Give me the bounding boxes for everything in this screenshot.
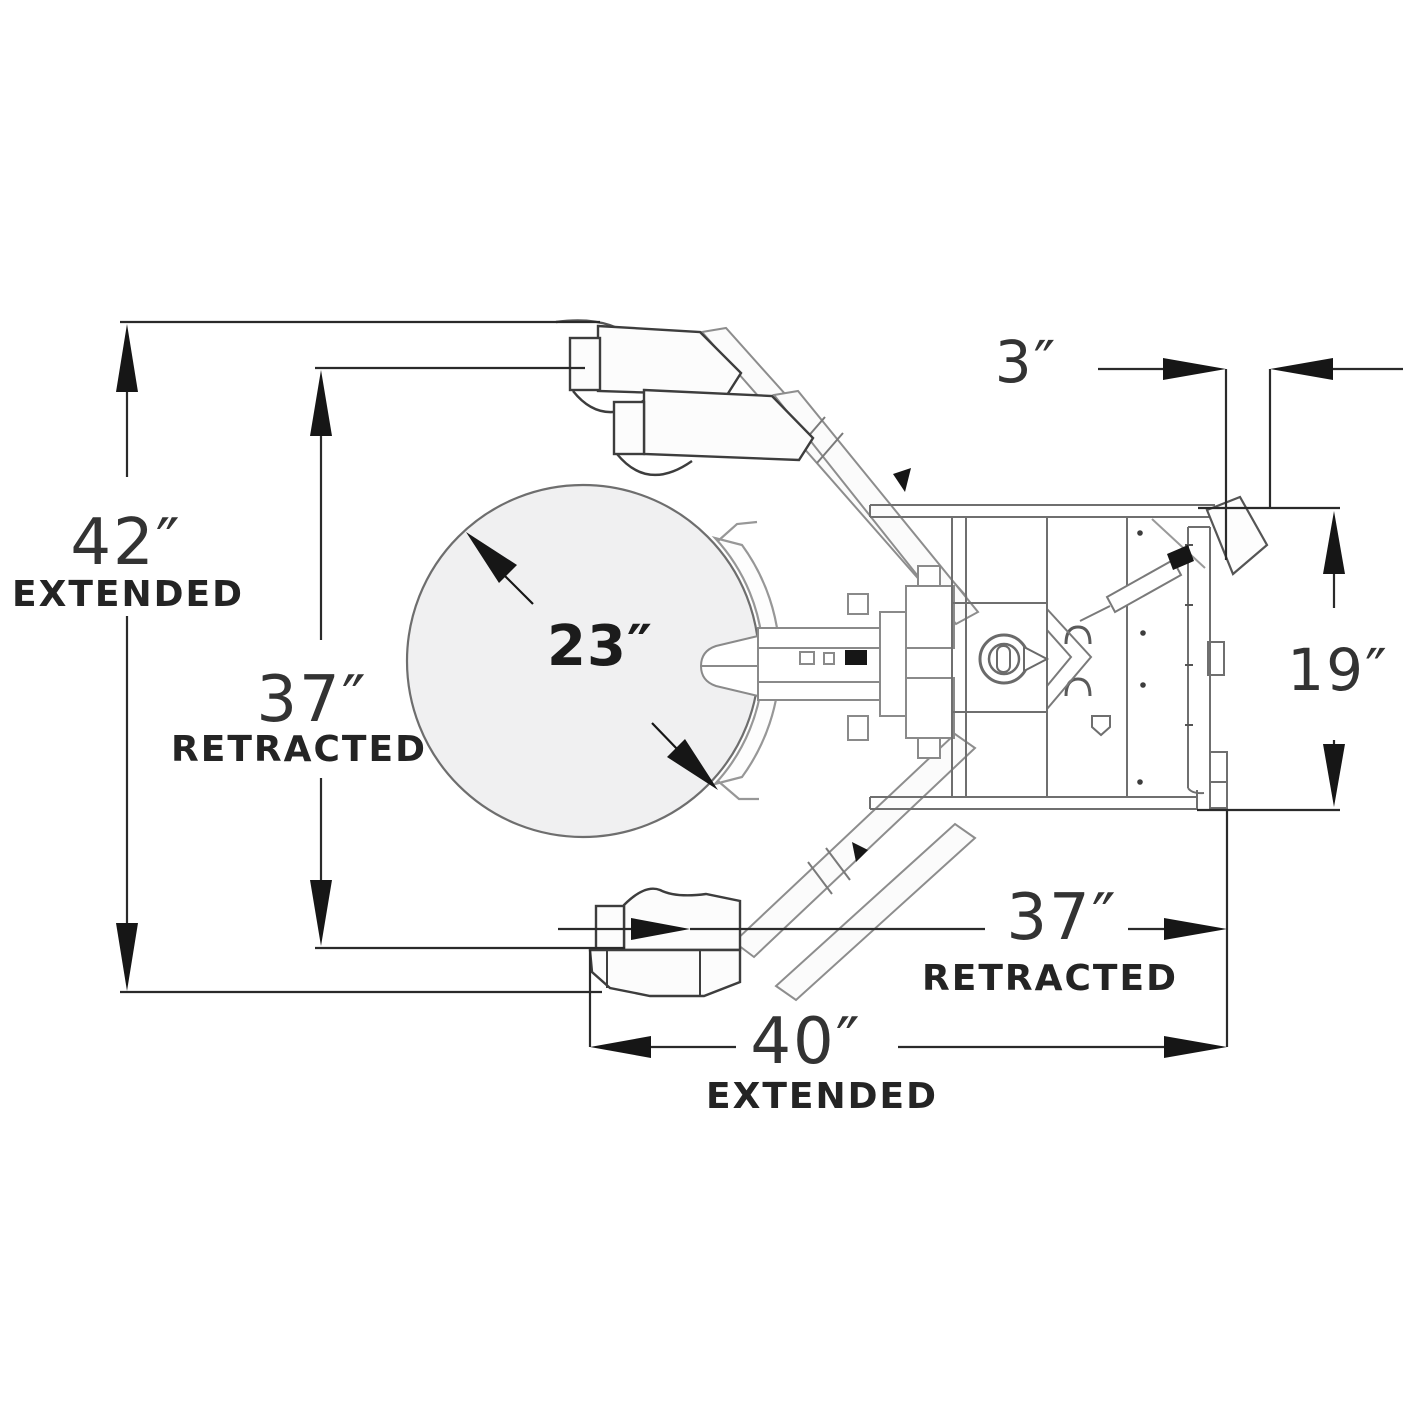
drawing-canvas: 42″ EXTENDED 37″ RETRACTED 23″ 3″ 19″ 37…: [0, 0, 1408, 1408]
hydraulic-cylinder: [1107, 560, 1181, 612]
dim-value-40: 40″: [750, 1010, 861, 1074]
pump-ring: [980, 635, 1028, 683]
dim-value-19: 19″: [1287, 641, 1388, 699]
dim-value-3: 3″: [995, 333, 1058, 391]
dim-label-retracted-left: RETRACTED: [171, 732, 427, 768]
dim-value-37-bottom: 37″: [1006, 886, 1117, 950]
top-arm-pin: [893, 468, 911, 492]
top-gripper-jaw: [556, 320, 813, 474]
dim-value-42: 42″: [70, 511, 181, 575]
dim-label-extended-bottom: EXTENDED: [706, 1079, 938, 1115]
bottom-gripper-jaw: [590, 889, 740, 996]
side-plate: [1188, 527, 1210, 793]
line-art: [0, 0, 1408, 1408]
top-rail: [870, 505, 1215, 517]
shaft-block: [845, 650, 867, 665]
dim-value-23-diameter: 23″: [547, 619, 653, 675]
dim-value-37-left: 37″: [256, 668, 367, 732]
dim-label-extended-left: EXTENDED: [12, 577, 244, 613]
dim-label-retracted-bottom: RETRACTED: [922, 961, 1178, 997]
